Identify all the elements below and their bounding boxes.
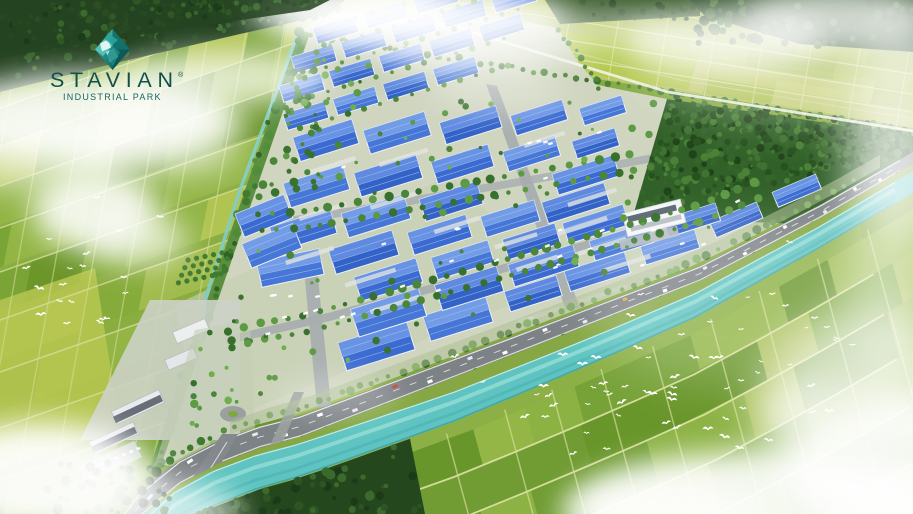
svg-text:®: ® [178,71,184,79]
svg-text:INDUSTRIAL PARK: INDUSTRIAL PARK [63,92,162,102]
